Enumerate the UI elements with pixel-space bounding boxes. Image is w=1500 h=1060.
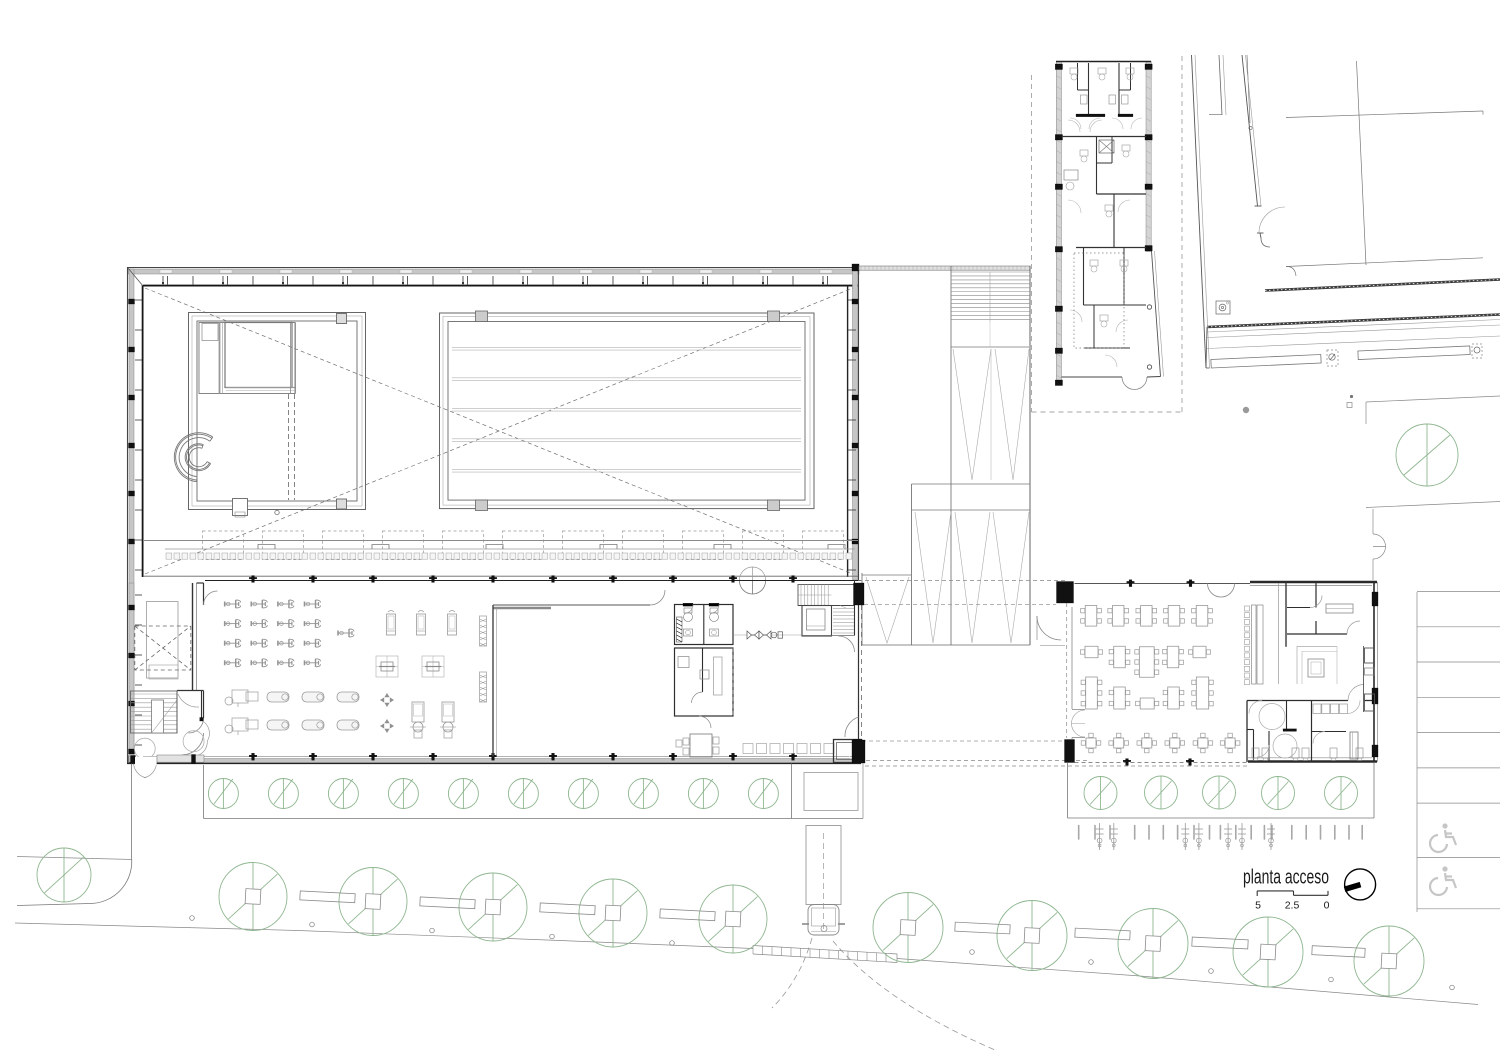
svg-text:0: 0 bbox=[1324, 900, 1330, 912]
svg-text:planta acceso: planta acceso bbox=[1243, 867, 1329, 889]
svg-text:2.5: 2.5 bbox=[1285, 900, 1300, 912]
svg-text:5: 5 bbox=[1255, 900, 1261, 912]
